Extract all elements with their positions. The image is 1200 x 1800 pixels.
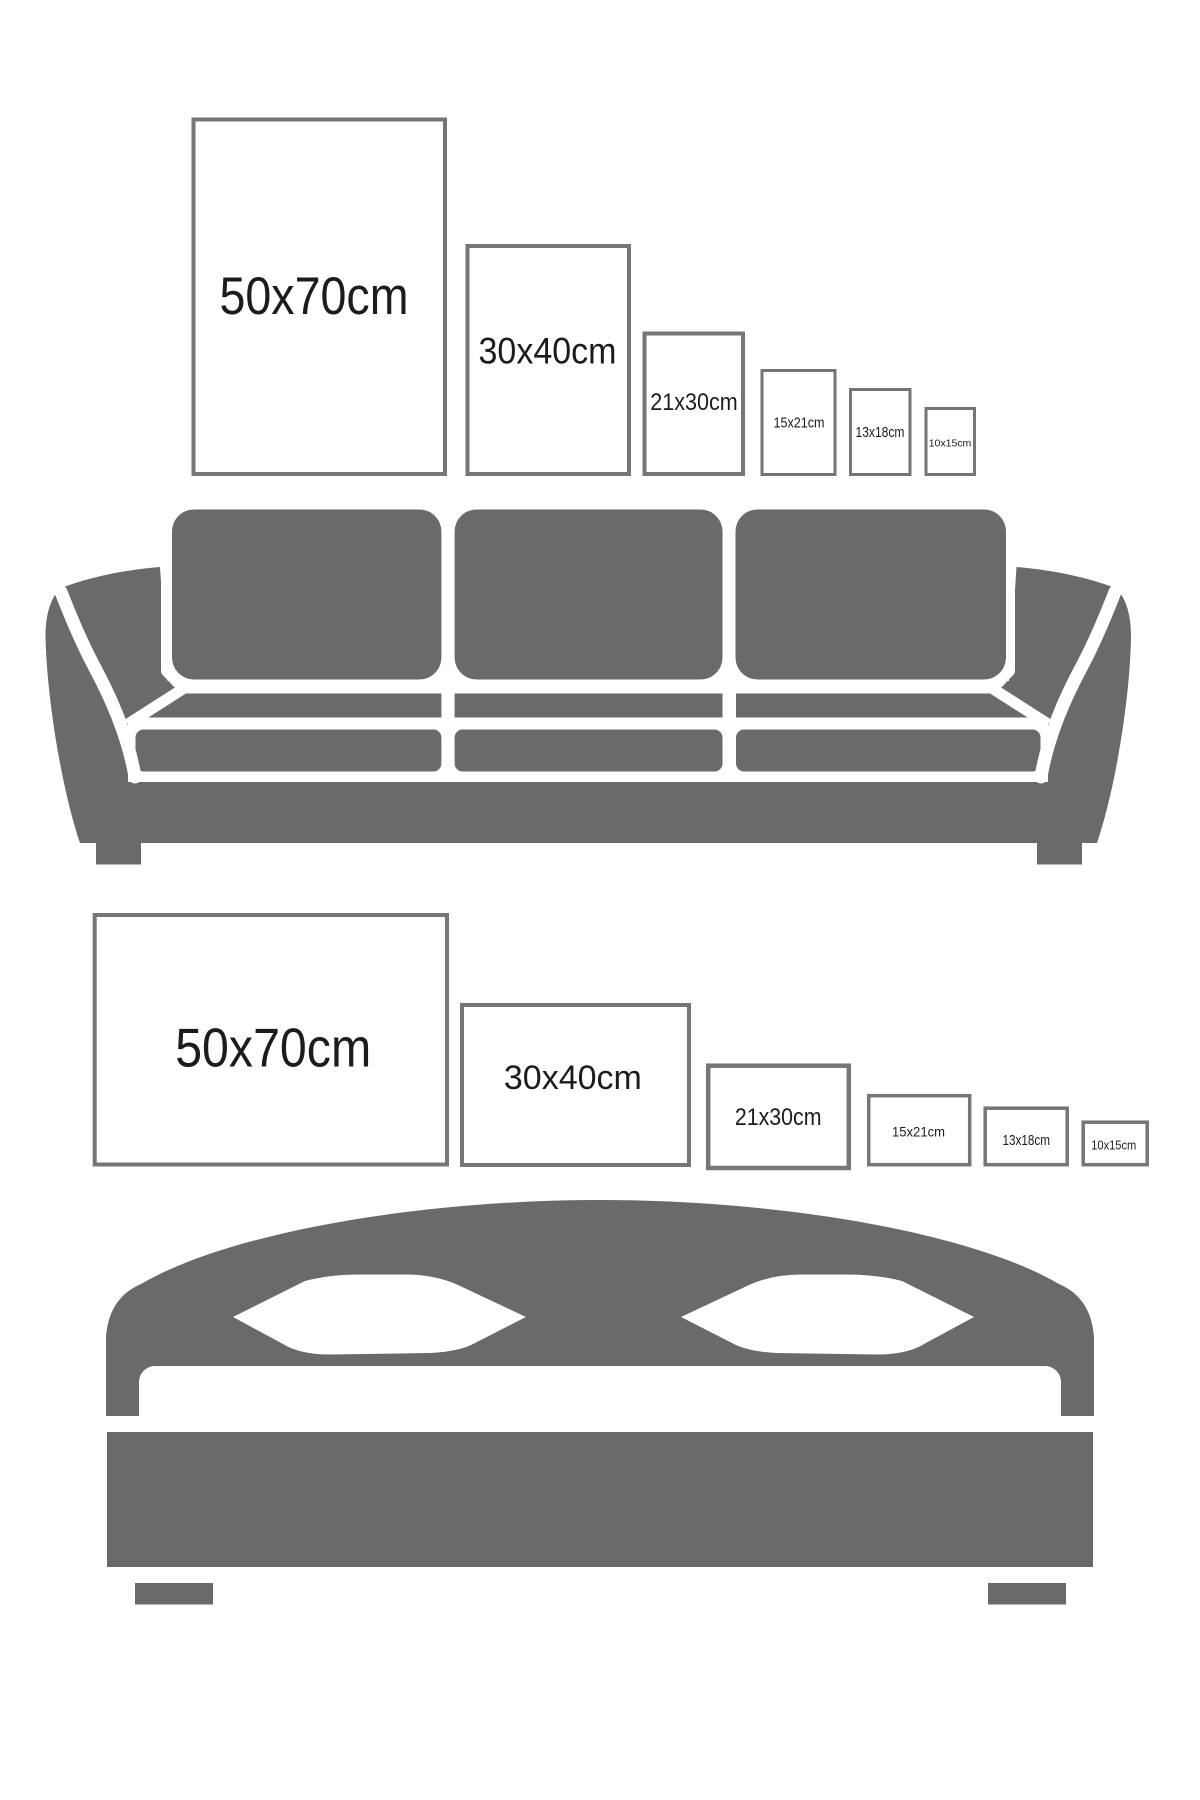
svg-text:13x18cm: 13x18cm <box>1003 1132 1051 1149</box>
svg-text:30x40cm: 30x40cm <box>479 330 617 371</box>
svg-text:10x15cm: 10x15cm <box>1091 1139 1136 1153</box>
svg-text:10x15cm: 10x15cm <box>929 438 972 450</box>
svg-text:13x18cm: 13x18cm <box>856 424 905 441</box>
svg-text:50x70cm: 50x70cm <box>220 267 409 326</box>
svg-text:15x21cm: 15x21cm <box>774 416 825 432</box>
svg-text:15x21cm: 15x21cm <box>892 1123 945 1139</box>
svg-text:50x70cm: 50x70cm <box>175 1017 371 1079</box>
svg-text:30x40cm: 30x40cm <box>504 1059 642 1097</box>
svg-text:21x30cm: 21x30cm <box>735 1104 822 1131</box>
svg-text:21x30cm: 21x30cm <box>650 389 738 416</box>
